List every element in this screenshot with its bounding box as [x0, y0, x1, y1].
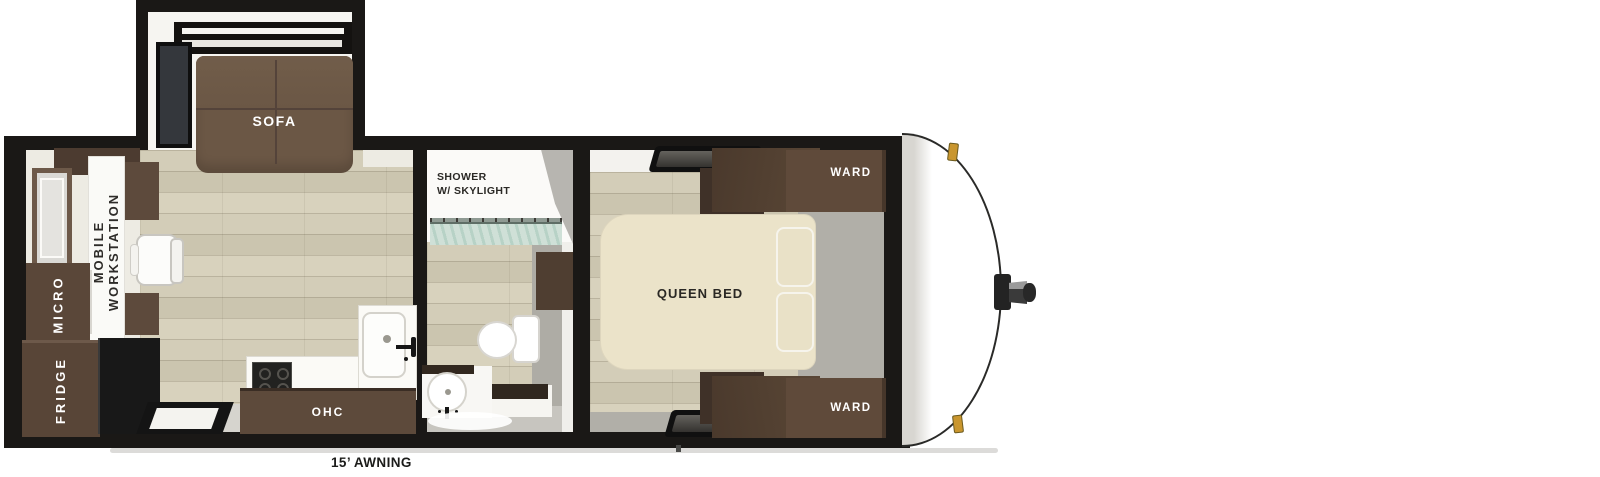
- microwave-cabinet: MICRO: [26, 263, 90, 345]
- kitchen-faucet-dot: [404, 357, 408, 361]
- office-chair: [128, 228, 182, 290]
- marker-light-bottom: [952, 414, 964, 433]
- pillow: [776, 227, 814, 287]
- micro-label: MICRO: [51, 275, 66, 333]
- kitchen-faucet-handle: [411, 337, 416, 357]
- bathroom-wall-right: [573, 140, 590, 438]
- toilet-bowl: [477, 321, 517, 359]
- wardrobe-bottom-label: WARD: [822, 402, 880, 416]
- ground-shadow: [110, 448, 998, 453]
- shower-label-line2: W/ SKYLIGHT: [437, 185, 527, 199]
- slideout-roof-window: [174, 22, 352, 54]
- vanity-sink-drain: [445, 389, 451, 395]
- entry-step-mat: [149, 408, 219, 429]
- shower-label-line1: SHOWER: [437, 171, 527, 185]
- queen-bed-label: QUEEN BED: [630, 286, 770, 302]
- ohc-label: OHC: [312, 406, 345, 420]
- tank-drain: [676, 445, 681, 452]
- sink-drain: [383, 335, 391, 343]
- slideout-roof-window-slit: [182, 28, 344, 34]
- fridge-label: FRIDGE: [54, 356, 69, 423]
- chair-backrest: [170, 238, 184, 284]
- desk-lower-cabinet: [121, 293, 159, 335]
- bath-mat: [428, 412, 512, 430]
- slideout-roof-window-slit: [182, 40, 342, 47]
- floorplan-canvas: MOBILE WORKSTATION MICRO FRIDGE SOFA OH: [0, 0, 1600, 477]
- burner: [277, 368, 289, 380]
- window-pane: [40, 178, 64, 258]
- wardrobe-top-label: WARD: [822, 167, 880, 181]
- mobile-workstation-desk: MOBILE WORKSTATION: [88, 156, 125, 348]
- hitch-coupler: [1023, 283, 1036, 302]
- fridge-cabinet: FRIDGE: [22, 340, 100, 437]
- awning-label: 15’ AWNING: [331, 455, 431, 470]
- sofa: SOFA: [196, 56, 353, 173]
- pillow: [776, 292, 814, 352]
- shower-glass-door: [430, 222, 562, 245]
- slideout-window: [156, 42, 192, 148]
- vanity-faucet-dot: [438, 410, 441, 413]
- mobile-workstation-label-line2: WORKSTATION: [107, 193, 122, 311]
- living-top-wall-face: [363, 150, 417, 167]
- shower-label: SHOWER W/ SKYLIGHT: [437, 171, 527, 198]
- bath-linen-cabinet: [536, 252, 573, 310]
- burner: [259, 368, 271, 380]
- ohc-cabinet: OHC: [240, 388, 416, 434]
- mobile-workstation-label-line1: MOBILE: [92, 193, 107, 311]
- front-cap: [902, 133, 1002, 447]
- wardrobe-top: [786, 150, 886, 212]
- desk-upper-cabinet: [121, 162, 159, 220]
- vanity-sink: [427, 372, 467, 412]
- hitch-mount: [994, 274, 1011, 310]
- top-wall-right: [363, 136, 910, 150]
- sofa-label: SOFA: [196, 111, 353, 131]
- chair-armrest: [130, 244, 139, 276]
